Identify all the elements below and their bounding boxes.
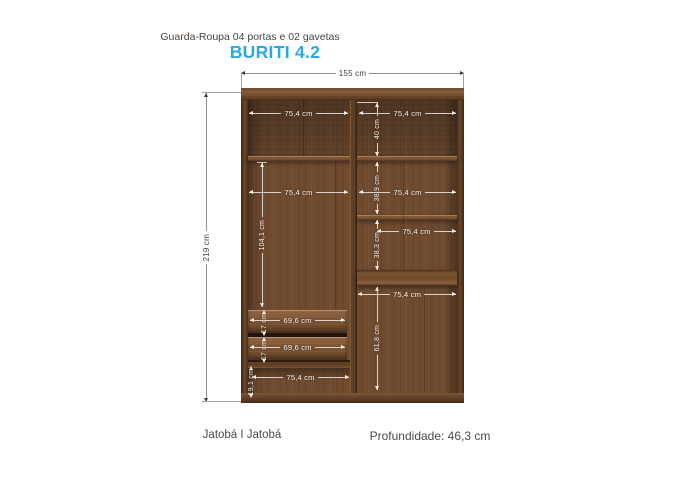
dim-top-section-height: 40 cm	[373, 103, 382, 156]
dim-extension-tick	[241, 73, 242, 88]
dim-label: 75,4 cm	[281, 189, 315, 197]
dim-overall-width: 155 cm	[241, 69, 464, 78]
dim-line	[315, 320, 345, 321]
dim-line	[318, 377, 349, 378]
dim-line	[377, 204, 378, 214]
wardrobe-bottom-panel	[241, 393, 464, 403]
dim-right-section2-height: 38,9 cm	[373, 162, 382, 214]
dim-extension-tick	[463, 73, 464, 88]
dim-label: 75,4 cm	[390, 189, 424, 197]
dim-right-section3-height: 38,3 cm	[373, 220, 382, 270]
dim-left-bottom-height: 19,1 cm	[247, 366, 256, 392]
dim-left-top-width: 75,4 cm	[249, 109, 348, 118]
dim-line	[249, 113, 281, 114]
dim-line	[316, 113, 348, 114]
dim-line	[425, 113, 456, 114]
dim-line	[434, 231, 456, 232]
dim-line	[262, 163, 263, 217]
wardrobe-drawing	[241, 88, 464, 403]
dim-right-bottom-height: 61,8 cm	[373, 287, 382, 390]
dim-extension-tick	[202, 92, 241, 93]
dim-line	[315, 347, 345, 348]
wood-seam	[403, 161, 404, 270]
dim-line	[377, 103, 378, 116]
dim-left-main-height: 104,1 cm	[258, 163, 267, 307]
dim-line	[425, 192, 456, 193]
dim-label: 61,8 cm	[374, 322, 381, 354]
right-shelf-2	[357, 215, 457, 220]
dim-line	[377, 162, 378, 172]
dim-label: 75,4 cm	[281, 110, 315, 118]
dim-left-bottom-width: 75,4 cm	[252, 373, 349, 382]
dim-extension-tick	[357, 102, 378, 103]
dim-label: 69,6 cm	[280, 344, 314, 352]
dim-line	[377, 220, 378, 229]
product-title: BURITI 4.2	[135, 42, 415, 63]
dim-label: 219 cm	[203, 231, 211, 264]
wardrobe-left-side-panel	[241, 100, 248, 393]
dim-line	[241, 73, 336, 74]
dim-line	[252, 377, 283, 378]
dim-label: 155 cm	[336, 70, 369, 78]
dim-line	[206, 264, 207, 402]
wood-seam	[424, 286, 425, 393]
finish-label: Jatobá I Jatobá	[167, 429, 317, 441]
center-divider	[350, 100, 357, 393]
dim-drawer1-height: 17 cm	[260, 310, 269, 333]
dim-line	[424, 294, 456, 295]
dim-line	[377, 287, 378, 322]
wardrobe-top-panel	[241, 88, 464, 100]
dim-label: 38,9 cm	[374, 172, 381, 204]
dim-line	[316, 192, 348, 193]
dim-line	[206, 93, 207, 231]
dim-label: 75,4 cm	[283, 374, 317, 382]
dim-line	[377, 355, 378, 390]
dim-extension-tick	[257, 162, 267, 163]
dim-label: 75,4 cm	[399, 228, 433, 236]
wood-seam	[335, 161, 336, 308]
wardrobe-right-side-panel	[457, 100, 464, 393]
dim-right-section3-width: 75,4 cm	[377, 227, 456, 236]
dim-label: 40 cm	[374, 116, 381, 142]
dim-label: 75,4 cm	[390, 110, 424, 118]
dim-line	[369, 73, 464, 74]
dim-extension-tick	[202, 401, 241, 402]
dim-label: 38,3 cm	[374, 229, 381, 261]
dim-label: 69,6 cm	[280, 317, 314, 325]
dim-line	[377, 261, 378, 270]
dim-drawer2-height: 17 cm	[260, 337, 269, 360]
dim-label: 104,1 cm	[259, 217, 266, 253]
right-cross-panel	[357, 270, 457, 286]
dim-overall-height: 219 cm	[202, 93, 211, 402]
dim-line	[262, 253, 263, 307]
product-spec-diagram: Guarda-Roupa 04 portas e 02 gavetas BURI…	[0, 0, 700, 500]
depth-label: Profundidade: 46,3 cm	[350, 429, 510, 443]
dim-label: 75,4 cm	[390, 291, 424, 299]
dim-line	[377, 143, 378, 156]
